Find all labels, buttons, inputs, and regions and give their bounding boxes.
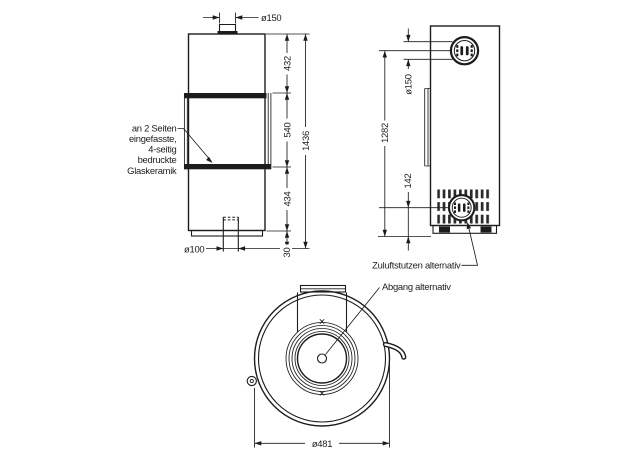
- label-flue-outlet-alternative: Abgang alternativ: [382, 281, 451, 292]
- technical-drawing: ø150 432 540 434 30 1436: [0, 0, 624, 460]
- dim-side-flue: ø150: [403, 29, 453, 95]
- side-view: ø150 1282 142 Zuluftstutzen alternativ A…: [326, 26, 500, 355]
- stove-body-outline: [189, 34, 266, 231]
- dim-front-flue-diameter: ø150: [261, 12, 281, 23]
- dim-front-glass-section: 540: [281, 123, 292, 138]
- side-base: [433, 226, 497, 234]
- door-handle: [386, 345, 404, 358]
- glass-annotation-line: Glaskeramik: [127, 165, 177, 176]
- dim-top-diameter: ø481: [255, 362, 390, 449]
- dim-side-inlet-height: 142: [402, 174, 413, 189]
- hinge-knob: [247, 376, 256, 385]
- air-inlet-label: Zuluftstutzen alternativ: [372, 222, 477, 271]
- body-inner-circle: [259, 295, 386, 422]
- dim-chain-front: 432 540 434 30: [280, 34, 292, 261]
- flue-center-mark: [318, 354, 327, 363]
- dim-top-body-diameter: ø481: [312, 438, 332, 449]
- dim-flue-top: ø150: [203, 12, 281, 24]
- dim-air-inlet: ø100: [184, 244, 245, 255]
- dim-front-air-inlet-diameter: ø100: [184, 244, 204, 255]
- glass-panel: [184, 93, 271, 169]
- rear-channel: [298, 293, 347, 333]
- flue-spigot: [451, 37, 478, 64]
- glass-annotation-line: eingefasste,: [129, 133, 177, 144]
- plinth: [192, 231, 263, 237]
- dim-front-top-section: 432: [281, 56, 292, 71]
- side-door-edge: [425, 89, 431, 167]
- air-inlet-pipe: [223, 217, 238, 252]
- dim-side-flue-diameter: ø150: [403, 74, 414, 94]
- dim-side-flue-height: 1282: [379, 123, 390, 143]
- dim-front-total-height: 1436: [300, 131, 311, 151]
- flue-rings: [286, 319, 358, 395]
- drawing-sheet: ø150 432 540 434 30 1436: [0, 0, 624, 460]
- dim-front-base-section: 434: [281, 192, 292, 207]
- dim-front-floor-clearance: 30: [281, 248, 292, 258]
- front-view: ø150 432 540 434 30 1436: [127, 12, 311, 261]
- body-outer-circle: [255, 291, 390, 426]
- extension-lines-front: [206, 34, 310, 249]
- label-air-inlet-alternative: Zuluftstutzen alternativ: [372, 260, 461, 271]
- glass-annotation-line: 4-seitig: [148, 144, 176, 155]
- top-view: ø481: [247, 286, 404, 449]
- glass-annotation-line: an 2 Seiten: [132, 123, 177, 134]
- dim-total-height-line: 1436: [300, 34, 311, 249]
- glass-annotation-line: bedruckte: [138, 154, 177, 165]
- air-inlet-spigot: [449, 195, 474, 220]
- flue-pipe-stub: [218, 25, 238, 35]
